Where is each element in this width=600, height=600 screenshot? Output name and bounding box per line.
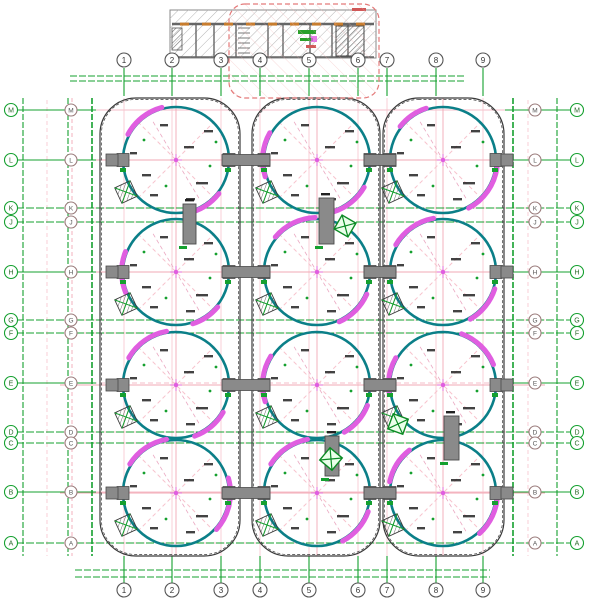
- annotation-mark: [150, 527, 158, 529]
- wall-block: [172, 28, 182, 50]
- grid-bubble-right-outer-label: L: [575, 158, 579, 165]
- grid-bubble-right-inner: L: [529, 154, 541, 166]
- grid-bubble-left-inner-label: G: [68, 317, 73, 324]
- annotation-mark: [463, 515, 475, 517]
- grid-bubble-bottom: 4: [253, 583, 267, 597]
- walkway-bridge: [222, 155, 270, 166]
- tank-node-east: [490, 266, 502, 279]
- grid-bubble-bottom-label: 2: [170, 586, 175, 595]
- annotation-dot: [165, 410, 168, 413]
- grid-bubble-right-outer: A: [571, 537, 584, 550]
- grid-bubble-right-inner: F: [529, 327, 541, 339]
- annotation-mark: [451, 479, 461, 481]
- annotation-dot: [350, 165, 353, 168]
- annotation-mark: [471, 463, 480, 465]
- node-fitting: [492, 168, 498, 172]
- annotation-mark: [186, 310, 195, 312]
- annotation-mark: [196, 294, 208, 296]
- grid-bubble-right-outer: K: [571, 202, 584, 215]
- outer-platform: [501, 266, 513, 278]
- annotation-mark: [446, 411, 455, 413]
- connector-fitting: [440, 462, 448, 465]
- annotation-mark: [150, 419, 158, 421]
- annotation-mark: [337, 407, 349, 409]
- annotation-dot: [306, 185, 309, 188]
- annotation-mark: [184, 258, 194, 260]
- grid-bubble-right-inner: D: [529, 426, 541, 438]
- annotation-mark: [291, 306, 299, 308]
- grid-bubble-left-inner: H: [65, 266, 77, 278]
- magenta-highlight-arc: [462, 334, 494, 365]
- annotation-dot: [432, 185, 435, 188]
- grid-bubble-right-inner-label: K: [533, 205, 538, 212]
- node-fitting: [366, 168, 372, 172]
- grid-bubble-top-label: 7: [385, 56, 390, 65]
- grid-bubble-right-inner: G: [529, 314, 541, 326]
- annotation-mark: [397, 485, 404, 487]
- annotation-dot: [482, 141, 485, 144]
- annotation-mark: [142, 286, 151, 288]
- annotation-mark: [453, 198, 462, 200]
- annotation-dot: [410, 139, 413, 142]
- walkway-bridge: [364, 488, 396, 499]
- grid-bubble-top-label: 8: [434, 56, 439, 65]
- annotation-mark: [397, 152, 404, 154]
- annotation-mark: [327, 431, 336, 433]
- node-fitting: [261, 393, 267, 397]
- grid-bubble-bottom-label: 5: [307, 586, 312, 595]
- annotation-dot: [284, 364, 287, 367]
- annotation-mark: [301, 349, 309, 351]
- grid-bubble-left-outer: G: [5, 314, 18, 327]
- annotation-mark: [204, 242, 213, 244]
- annotation-mark: [345, 130, 354, 132]
- grid-bubble-left-outer-label: D: [8, 430, 13, 437]
- annotation-mark: [471, 242, 480, 244]
- tank-diagonal: [317, 272, 340, 310]
- annotation-dot: [306, 518, 309, 521]
- outer-platform: [501, 379, 513, 391]
- grid-bubble-bottom: 1: [117, 583, 131, 597]
- tank-node-west: [117, 379, 129, 392]
- annotation-dot: [482, 253, 485, 256]
- grid-bubble-left-inner-label: D: [69, 429, 74, 436]
- grid-bubble-right-outer: F: [571, 327, 584, 340]
- node-fitting: [366, 501, 372, 505]
- annotation-mark: [130, 377, 137, 379]
- annotation-mark: [409, 507, 418, 509]
- grid-bubble-left-outer-label: E: [9, 381, 14, 388]
- annotation-mark: [417, 419, 425, 421]
- access-platform: [115, 181, 138, 204]
- annotation-mark: [409, 399, 418, 401]
- node-fitting: [225, 280, 231, 284]
- grid-bubble-right-outer-label: E: [575, 381, 580, 388]
- annotation-dot: [143, 472, 146, 475]
- annotation-dot: [432, 297, 435, 300]
- tank-diagonal: [443, 493, 466, 531]
- grid-bubble-left-outer: K: [5, 202, 18, 215]
- grid-bubble-right-inner-label: J: [533, 219, 536, 226]
- grid-bubble-bottom: 2: [165, 583, 179, 597]
- tank-diagonal: [317, 160, 340, 198]
- grid-bubble-right-inner-label: C: [533, 440, 538, 447]
- wall-dash: [202, 23, 211, 26]
- grid-bubble-left-outer: E: [5, 377, 18, 390]
- annotation-mark: [325, 258, 335, 260]
- tank-node-east: [490, 487, 502, 500]
- annotation-dot: [482, 366, 485, 369]
- annotation-mark: [451, 146, 461, 148]
- magenta-highlight-arc: [195, 412, 224, 436]
- stair-connector: [183, 204, 196, 244]
- node-fitting: [120, 501, 126, 505]
- annotation-mark: [130, 485, 137, 487]
- annotation-mark: [142, 507, 151, 509]
- annotation-mark: [130, 264, 137, 266]
- annotation-mark: [204, 463, 213, 465]
- annotation-mark: [186, 531, 195, 533]
- annotation-mark: [271, 377, 278, 379]
- grid-bubble-right-inner-label: F: [533, 330, 537, 337]
- magenta-highlight-arc: [390, 450, 410, 482]
- annotation-mark: [427, 349, 435, 351]
- tank-diagonal: [317, 493, 340, 531]
- annotation-dot: [215, 366, 218, 369]
- annotation-mark: [283, 174, 292, 176]
- magenta-highlight-arc: [193, 307, 218, 324]
- annotation-dot: [209, 498, 212, 501]
- annotation-mark: [160, 236, 168, 238]
- grid-bubble-left-outer-label: B: [9, 490, 14, 497]
- tank-diagonal: [176, 160, 199, 198]
- tank-diagonal: [153, 347, 176, 385]
- bridges-and-connectors: [106, 154, 513, 499]
- grid-bubble-bottom: 5: [302, 583, 316, 597]
- annotation-mark: [271, 152, 278, 154]
- grid-bubble-right-outer: C: [571, 437, 584, 450]
- access-platform: [256, 406, 279, 429]
- tank-diagonal: [176, 385, 199, 423]
- annotation-mark: [453, 310, 462, 312]
- annotation-mark: [291, 194, 299, 196]
- grid-bubble-bottom-label: 4: [258, 586, 263, 595]
- annotation-mark: [150, 194, 158, 196]
- walkway-bridge: [364, 380, 396, 391]
- annotation-mark: [463, 407, 475, 409]
- tank-node-east: [490, 154, 502, 167]
- grid-bubble-bottom-label: 8: [434, 586, 439, 595]
- annotation-dot: [356, 141, 359, 144]
- annotation-mark: [471, 130, 480, 132]
- annotation-mark: [160, 124, 168, 126]
- annotation-dot: [306, 297, 309, 300]
- grid-bubble-bottom: 6: [351, 583, 365, 597]
- grid-bubble-left-outer: M: [5, 104, 18, 117]
- annotation-dot: [215, 474, 218, 477]
- tank-diagonal: [294, 122, 317, 160]
- green-structural-grid: [16, 68, 570, 583]
- annotation-mark: [301, 236, 309, 238]
- tank-node-west: [117, 487, 129, 500]
- tank-diagonal: [443, 160, 466, 198]
- annotation-dot: [476, 165, 479, 168]
- node-fitting: [492, 501, 498, 505]
- annotation-mark: [463, 182, 475, 184]
- magenta-highlight-arc: [480, 495, 498, 534]
- tank-diagonal: [294, 455, 317, 493]
- grid-bubble-right-inner: A: [529, 537, 541, 549]
- tank-diagonal: [153, 455, 176, 493]
- annotation-dot: [165, 185, 168, 188]
- annotation-mark: [337, 182, 349, 184]
- annotation-dot: [209, 277, 212, 280]
- grid-bubble-right-outer: J: [571, 216, 584, 229]
- pump-house-plan: [170, 4, 379, 98]
- grid-bubble-right-inner: E: [529, 377, 541, 389]
- node-fitting: [387, 280, 393, 284]
- outer-platform: [106, 487, 118, 499]
- grid-bubble-right-outer: B: [571, 486, 584, 499]
- annotation-dot: [209, 165, 212, 168]
- grid-bubble-right-inner: B: [529, 486, 541, 498]
- annotation-mark: [150, 306, 158, 308]
- tank-farm-plan: 112233445566778899MMMMLLLLKKKKJJJJHHHHGG…: [0, 0, 600, 600]
- annotation-dot: [410, 251, 413, 254]
- annotation-mark: [186, 423, 195, 425]
- grid-bubble-right-outer: G: [571, 314, 584, 327]
- annotation-mark: [325, 146, 335, 148]
- annotation-mark: [397, 264, 404, 266]
- connector-fitting: [315, 246, 323, 249]
- annotation-dot: [356, 366, 359, 369]
- grid-bubble-bottom-label: 9: [481, 586, 486, 595]
- access-platform: [115, 406, 138, 429]
- annotation-dot: [410, 364, 413, 367]
- access-platform: [256, 293, 279, 316]
- magenta-highlight-arc: [470, 289, 495, 319]
- grid-bubble-left-outer: J: [5, 216, 18, 229]
- access-platform: [256, 514, 279, 537]
- grid-bubble-left-outer-label: K: [9, 206, 14, 213]
- node-fitting: [366, 280, 372, 284]
- annotation-mark: [291, 419, 299, 421]
- walkway-bridge: [222, 488, 270, 499]
- grid-bubble-left-outer: B: [5, 486, 18, 499]
- annotation-mark: [451, 258, 461, 260]
- annotation-mark: [325, 371, 335, 373]
- annotation-dot: [476, 498, 479, 501]
- grid-bubble-right-outer-label: C: [574, 441, 579, 448]
- annotation-dot: [165, 518, 168, 521]
- grid-bubble-bottom: 7: [380, 583, 394, 597]
- annotation-mark: [271, 485, 278, 487]
- grid-bubble-left-outer-label: F: [9, 331, 13, 338]
- annotation-dot: [482, 474, 485, 477]
- annotation-dot: [143, 251, 146, 254]
- node-fitting: [261, 280, 267, 284]
- annotation-dot: [356, 474, 359, 477]
- grid-bubble-right-inner-label: G: [532, 317, 537, 324]
- annotation-mark: [130, 152, 137, 154]
- tank-diagonal: [420, 234, 443, 272]
- grid-bubble-left-outer-label: G: [8, 318, 13, 325]
- grid-bubble-left-inner-label: H: [69, 269, 74, 276]
- grid-bubble-top: 5: [302, 53, 316, 67]
- annotation-mark: [271, 264, 278, 266]
- grid-bubble-top: 7: [380, 53, 394, 67]
- annotation-mark: [184, 371, 194, 373]
- annotation-mark: [204, 355, 213, 357]
- connector-fitting: [179, 246, 187, 249]
- annotation-dot: [350, 390, 353, 393]
- grid-bubble-left-outer: A: [5, 537, 18, 550]
- annotation-dot: [432, 410, 435, 413]
- grid-bubble-top: 1: [117, 53, 131, 67]
- tank-diagonal: [153, 122, 176, 160]
- node-fitting: [387, 168, 393, 172]
- cad-drawing-canvas: 112233445566778899MMMMLLLLKKKKJJJJHHHHGG…: [0, 0, 600, 600]
- tank-diagonal: [420, 347, 443, 385]
- grid-bubble-left-inner: J: [65, 216, 77, 228]
- node-fitting: [120, 168, 126, 172]
- annotation-mark: [204, 130, 213, 132]
- tank-node-west: [117, 266, 129, 279]
- grid-bubble-right-outer-label: A: [575, 541, 580, 548]
- annotation-mark: [337, 294, 349, 296]
- grid-bubble-right-outer-label: H: [574, 270, 579, 277]
- tank-diagonal: [294, 347, 317, 385]
- grid-bubble-left-inner-label: C: [69, 440, 74, 447]
- node-fitting: [366, 393, 372, 397]
- walkway-bridge: [222, 380, 270, 391]
- tank-diagonal: [420, 455, 443, 493]
- grid-bubble-left-inner: M: [65, 104, 77, 116]
- annotation-mark: [427, 124, 435, 126]
- grid-bubble-left-inner: A: [65, 537, 77, 549]
- node-fitting: [387, 501, 393, 505]
- annotation-mark: [301, 124, 309, 126]
- grid-bubble-top: 6: [351, 53, 365, 67]
- grid-bubble-top: 9: [476, 53, 490, 67]
- node-fitting: [225, 168, 231, 172]
- annotation-mark: [337, 515, 349, 517]
- grid-bubble-top-label: 4: [258, 56, 263, 65]
- grid-bubble-left-outer-label: M: [8, 108, 14, 115]
- grid-bubble-bottom-label: 7: [385, 586, 390, 595]
- annotation-mark: [345, 242, 354, 244]
- annotation-dot: [432, 518, 435, 521]
- grid-bubble-left-inner: E: [65, 377, 77, 389]
- annotation-dot: [306, 410, 309, 413]
- tank-diagonal: [176, 272, 199, 310]
- annotation-mark: [397, 377, 404, 379]
- grid-bubble-right-outer-label: G: [574, 318, 579, 325]
- magenta-highlight-arc: [128, 107, 162, 134]
- red-zone-hatch: [229, 4, 379, 98]
- annotation-mark: [185, 199, 194, 201]
- grid-bubble-left-inner: K: [65, 202, 77, 214]
- annotation-mark: [321, 193, 330, 195]
- grid-bubble-bottom-label: 1: [122, 586, 127, 595]
- annotation-mark: [417, 527, 425, 529]
- annotation-dot: [165, 297, 168, 300]
- node-fitting: [492, 280, 498, 284]
- tank-diagonal: [153, 234, 176, 272]
- node-fitting: [225, 393, 231, 397]
- walkway-bridge: [222, 267, 270, 278]
- node-fitting: [387, 393, 393, 397]
- annotation-mark: [463, 294, 475, 296]
- annotation-dot: [215, 253, 218, 256]
- annotation-dot: [143, 364, 146, 367]
- grid-bubble-top-label: 1: [122, 56, 127, 65]
- annotation-mark: [327, 423, 336, 425]
- grid-bubble-bottom: 9: [476, 583, 490, 597]
- grid-bubble-left-inner-label: A: [69, 540, 74, 547]
- grid-bubble-left-outer: L: [5, 154, 18, 167]
- grid-bubble-left-outer: H: [5, 266, 18, 279]
- annotation-dot: [284, 472, 287, 475]
- grid-bubble-right-inner-label: M: [532, 107, 537, 114]
- grid-bubble-left-inner-label: B: [69, 489, 73, 496]
- grid-bubble-right-inner: K: [529, 202, 541, 214]
- annotation-mark: [196, 407, 208, 409]
- annotation-mark: [453, 531, 462, 533]
- annotation-mark: [301, 457, 309, 459]
- annotation-dot: [476, 390, 479, 393]
- annotation-mark: [427, 457, 435, 459]
- grid-bubble-left-inner: D: [65, 426, 77, 438]
- grid-bubble-left-inner: C: [65, 437, 77, 449]
- grid-bubble-left-inner: F: [65, 327, 77, 339]
- annotation-mark: [196, 515, 208, 517]
- grid-bubble-left-outer-label: J: [9, 220, 13, 227]
- grid-bubble-top: 4: [253, 53, 267, 67]
- access-platform: [382, 293, 405, 316]
- tank-node-west: [117, 154, 129, 167]
- grid-bubble-right-inner: M: [529, 104, 541, 116]
- grid-bubble-right-inner-label: E: [533, 380, 538, 387]
- grid-bubble-right-outer-label: K: [575, 206, 580, 213]
- annotation-mark: [409, 174, 418, 176]
- grid-bubble-bottom-label: 3: [219, 586, 224, 595]
- grid-bubble-right-inner-label: A: [533, 540, 538, 547]
- grid-bubble-left-outer-label: A: [9, 541, 14, 548]
- annotation-mark: [291, 527, 299, 529]
- grid-bubble-right-inner: H: [529, 266, 541, 278]
- grid-bubble-top-label: 5: [307, 56, 312, 65]
- annotation-mark: [471, 355, 480, 357]
- grid-bubble-left-inner: G: [65, 314, 77, 326]
- grid-bubble-left-outer: F: [5, 327, 18, 340]
- annotation-mark: [345, 463, 354, 465]
- annotation-dot: [410, 472, 413, 475]
- access-platform: [115, 514, 138, 537]
- annotation-dot: [215, 141, 218, 144]
- annotation-mark: [196, 182, 208, 184]
- annotation-dot: [284, 139, 287, 142]
- grid-bubble-right-outer-label: J: [575, 220, 579, 227]
- grid-bubble-left-inner: B: [65, 486, 77, 498]
- grid-bubble-left-outer-label: L: [9, 158, 13, 165]
- tank-diagonal: [176, 493, 199, 531]
- grid-bubble-left-inner-label: F: [69, 330, 73, 337]
- grid-bubble-left-inner-label: M: [68, 107, 73, 114]
- outer-platform: [501, 487, 513, 499]
- outer-platform: [106, 266, 118, 278]
- annotation-mark: [184, 479, 194, 481]
